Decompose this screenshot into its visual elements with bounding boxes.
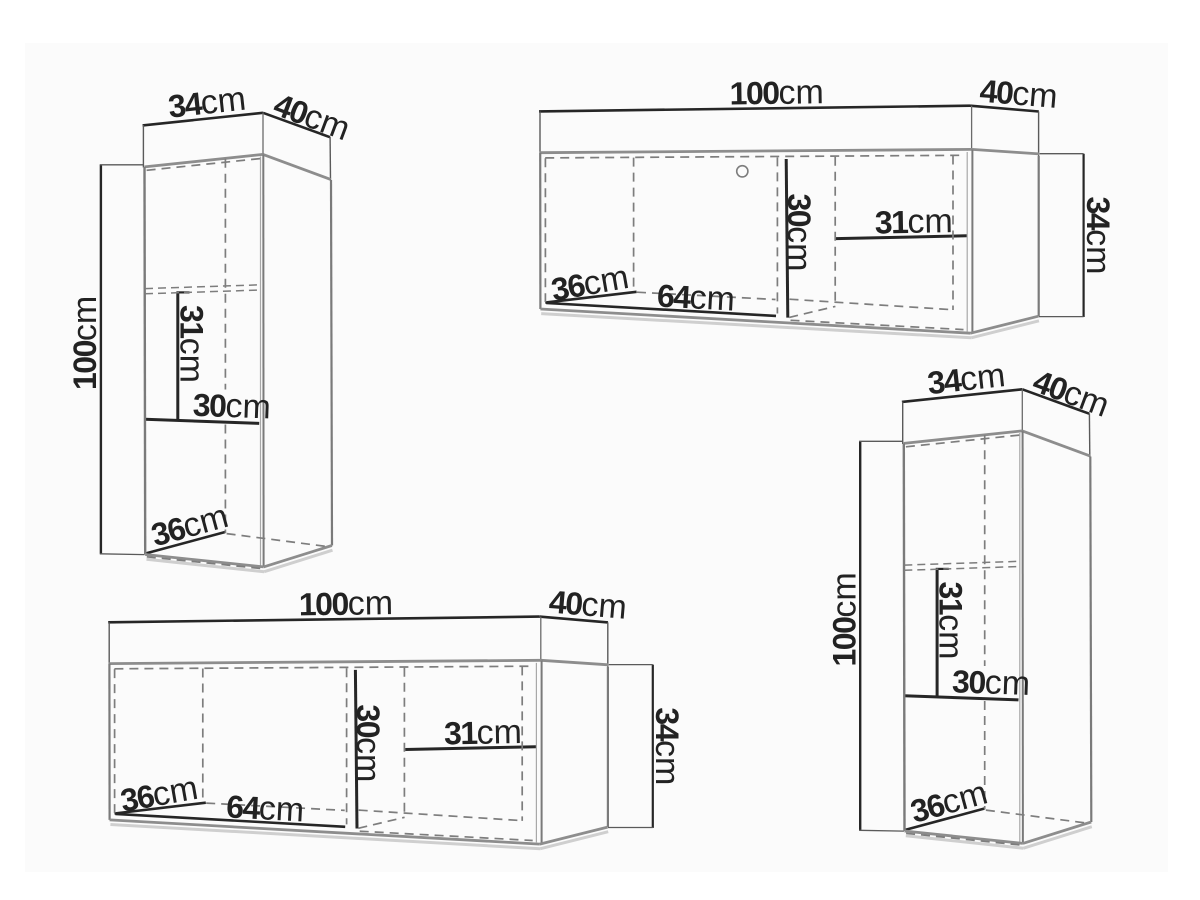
svg-text:34cm: 34cm xyxy=(648,707,686,785)
svg-text:30cm: 30cm xyxy=(780,194,818,272)
svg-text:34cm: 34cm xyxy=(1079,197,1117,275)
svg-text:40cm: 40cm xyxy=(978,72,1059,116)
svg-text:30cm: 30cm xyxy=(192,386,271,427)
svg-text:31cm: 31cm xyxy=(874,202,953,241)
svg-text:100cm: 100cm xyxy=(66,296,104,390)
svg-text:64cm: 64cm xyxy=(656,277,736,319)
svg-text:31cm: 31cm xyxy=(444,713,523,752)
svg-text:64cm: 64cm xyxy=(225,787,305,829)
svg-text:100cm: 100cm xyxy=(299,584,394,623)
svg-text:40cm: 40cm xyxy=(548,583,629,627)
svg-text:100cm: 100cm xyxy=(729,73,824,112)
svg-text:100cm: 100cm xyxy=(826,572,864,666)
svg-text:30cm: 30cm xyxy=(952,662,1031,703)
svg-text:31cm: 31cm xyxy=(172,305,210,383)
svg-text:30cm: 30cm xyxy=(349,704,387,782)
svg-text:31cm: 31cm xyxy=(932,582,970,660)
